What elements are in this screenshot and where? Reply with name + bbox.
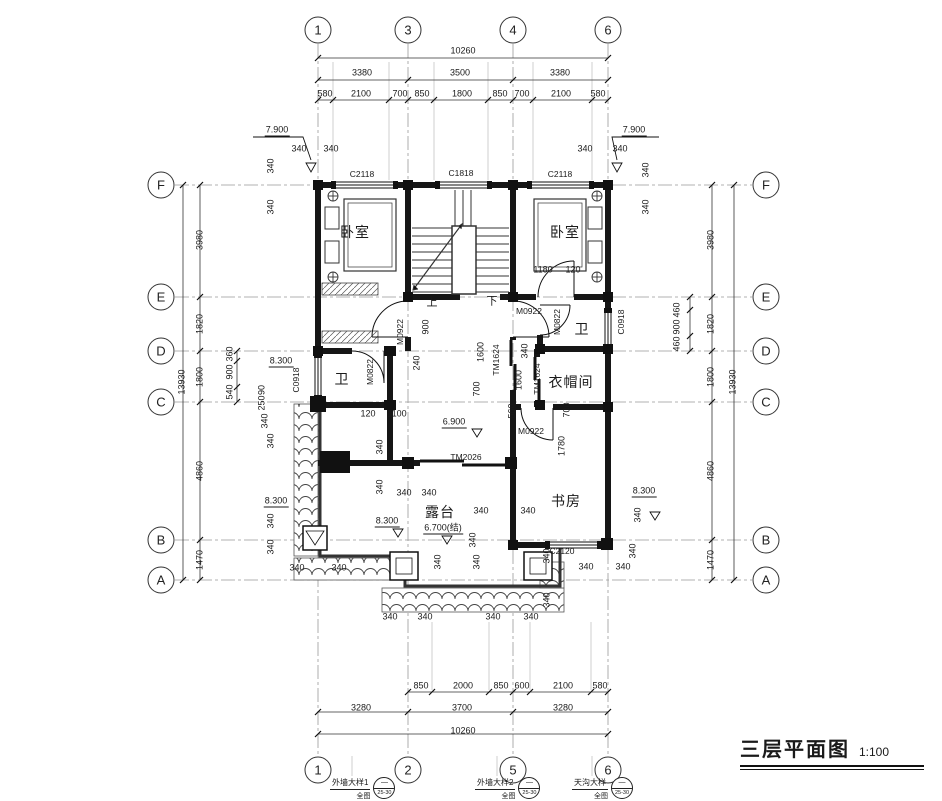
dim-label: 3700: [452, 704, 472, 713]
dim-label: 340: [469, 532, 478, 547]
dim-label: 1780: [558, 436, 567, 456]
dim-label: 340: [289, 564, 304, 573]
dim-label: 3380: [550, 69, 570, 78]
dim-label: 900: [422, 319, 431, 334]
drawing-scale: 1:100: [859, 745, 889, 759]
detail-callout-sub: 全图: [594, 791, 608, 801]
grid-bubble-B: B: [148, 527, 175, 554]
dim-label: 340: [520, 507, 535, 516]
elevation-label: 8.300: [269, 357, 294, 368]
dim-label: 340: [382, 613, 397, 622]
drawing-title-text: 三层平面图: [740, 733, 850, 762]
grid-bubble-D: D: [753, 338, 780, 365]
elevation-label: 8.300: [632, 487, 657, 498]
detail-callout-sub: 全图: [356, 791, 370, 801]
elevation-label: 6.700(结): [423, 524, 463, 535]
room-label: 卫: [335, 372, 350, 386]
dim-label: 850: [492, 90, 507, 99]
dim-label: 13930: [178, 369, 187, 394]
dim-label: 120: [565, 266, 580, 275]
dim-label: 340: [473, 554, 482, 569]
dim-label: 3280: [553, 704, 573, 713]
grid-bubble-1: 1: [305, 757, 332, 784]
dim-label: 340: [267, 158, 276, 173]
annotation-layer: 1026033803500338058021007008501800850700…: [0, 0, 942, 801]
grid-bubble-D: D: [148, 338, 175, 365]
dim-label: 340: [543, 548, 552, 563]
title-underline: [740, 769, 924, 770]
room-label: 卧室: [550, 225, 580, 239]
elevation-label: 7.900: [622, 126, 647, 137]
dim-label: 250: [258, 395, 267, 410]
dim-label: 700: [473, 381, 482, 396]
dim-label: 1800: [196, 367, 205, 387]
detail-reference-circle: —25-30: [373, 777, 395, 799]
grid-bubble-3: 3: [395, 17, 422, 44]
detail-callout: 外墙大样2全图—25-30: [475, 777, 540, 801]
dim-label: 850: [493, 682, 508, 691]
dim-label: 580: [590, 90, 605, 99]
dim-label: 240: [413, 355, 422, 370]
grid-bubble-E: E: [753, 284, 780, 311]
opening-tag: M0922: [518, 427, 544, 436]
elevation-label: 8.300: [375, 517, 400, 528]
dim-label: 700: [514, 90, 529, 99]
dim-label: 900: [673, 319, 682, 334]
detail-callout: 外墙大样1全图—25-30: [330, 777, 395, 801]
dim-label: 700: [392, 90, 407, 99]
dim-label: 340: [331, 564, 346, 573]
dim-label: 1800: [707, 367, 716, 387]
dim-label: 1100: [387, 410, 406, 419]
dim-label: 2100: [351, 90, 371, 99]
grid-bubble-6: 6: [595, 17, 622, 44]
elevation-label: 8.300: [264, 497, 289, 508]
dim-label: 900: [226, 364, 235, 379]
dim-label: 540: [226, 384, 235, 399]
grid-bubble-1: 1: [305, 17, 332, 44]
dim-label: 1600: [515, 370, 524, 390]
dim-label: 340: [376, 479, 385, 494]
detail-callout-label: 外墙大样2: [475, 777, 515, 790]
dim-label: 1820: [707, 314, 716, 334]
dim-label: 340: [267, 513, 276, 528]
dim-label: 1470: [707, 550, 716, 570]
grid-bubble-4: 4: [500, 17, 527, 44]
dim-label: 340: [323, 145, 338, 154]
detail-reference-circle: —25-30: [518, 777, 540, 799]
opening-tag: C0918: [617, 309, 626, 334]
dim-label: 340: [434, 554, 443, 569]
opening-tag: M0922: [516, 307, 542, 316]
dim-label: 1800: [452, 90, 472, 99]
dim-label: 340: [417, 613, 432, 622]
dim-label: 340: [267, 539, 276, 554]
grid-bubble-2: 2: [395, 757, 422, 784]
dim-label: 340: [521, 343, 530, 358]
dim-label: 10260: [450, 47, 475, 56]
dim-label: 3980: [196, 230, 205, 250]
grid-bubble-E: E: [148, 284, 175, 311]
opening-tag: M0822: [553, 309, 562, 335]
room-label: 卧室: [340, 225, 370, 239]
dim-label: 850: [414, 90, 429, 99]
dim-label: 700: [563, 402, 572, 417]
opening-tag: C0918: [292, 367, 301, 392]
dim-label: 3280: [351, 704, 371, 713]
dim-label: 340: [261, 413, 270, 428]
dim-label: 4860: [707, 461, 716, 481]
stair-direction-label: 上: [427, 298, 438, 309]
opening-tag: TM1624: [533, 363, 542, 394]
room-label: 书房: [551, 494, 581, 508]
dim-label: 340: [267, 199, 276, 214]
dim-label: 10260: [450, 727, 475, 736]
detail-callout: 天沟大样全图—25-30: [572, 777, 633, 801]
dim-label: 340: [578, 563, 593, 572]
dim-label: 340: [291, 145, 306, 154]
grid-bubble-B: B: [753, 527, 780, 554]
dim-label: 340: [577, 145, 592, 154]
grid-bubble-A: A: [753, 567, 780, 594]
dim-label: 2100: [551, 90, 571, 99]
dim-label: 3380: [352, 69, 372, 78]
dim-label: 340: [615, 563, 630, 572]
opening-tag: C1818: [448, 169, 473, 178]
elevation-label: 7.900: [265, 126, 290, 137]
dim-label: 340: [642, 162, 651, 177]
detail-callout-sub: 全图: [501, 791, 515, 801]
dim-label: 340: [523, 613, 538, 622]
dim-label: 3980: [707, 230, 716, 250]
dim-label: 560: [508, 403, 517, 418]
dim-label: 340: [629, 543, 638, 558]
dim-label: 4860: [196, 461, 205, 481]
dim-label: 1820: [196, 314, 205, 334]
dim-label: 90: [258, 385, 267, 395]
dim-label: 340: [612, 145, 627, 154]
dim-label: 13930: [729, 369, 738, 394]
dim-label: 340: [376, 439, 385, 454]
dim-label: 360: [226, 346, 235, 361]
opening-tag: C2118: [548, 170, 572, 179]
room-label: 露台: [425, 505, 455, 519]
room-label: 卫: [575, 322, 590, 336]
dim-label: 850: [413, 682, 428, 691]
opening-tag: C2120: [549, 547, 574, 556]
dim-label: 340: [485, 613, 500, 622]
dim-label: 1180: [533, 266, 552, 275]
opening-tag: M0922: [396, 319, 405, 345]
dim-label: 1600: [477, 342, 486, 362]
dim-label: 340: [543, 592, 552, 607]
grid-bubble-A: A: [148, 567, 175, 594]
opening-tag: M0822: [366, 359, 375, 385]
detail-callout-label: 天沟大样: [572, 777, 608, 790]
dim-label: 340: [634, 507, 643, 522]
floor-plan-sheet: 1026033803500338058021007008501800850700…: [0, 0, 942, 801]
dim-label: 120: [360, 410, 375, 419]
dim-label: 340: [396, 489, 411, 498]
dim-label: 340: [642, 199, 651, 214]
opening-tag: TM2026: [450, 453, 481, 462]
grid-bubble-C: C: [753, 389, 780, 416]
grid-bubble-F: F: [753, 172, 780, 199]
dim-label: 2100: [553, 682, 573, 691]
dim-label: 600: [514, 682, 529, 691]
dim-label: 1470: [196, 550, 205, 570]
dim-label: 460: [673, 336, 682, 351]
dim-label: 580: [592, 682, 607, 691]
dim-label: 3500: [450, 69, 470, 78]
dim-label: 340: [473, 507, 488, 516]
dim-label: 340: [267, 433, 276, 448]
room-label: 衣帽间: [549, 375, 594, 389]
drawing-title: 三层平面图 1:100: [740, 733, 924, 767]
opening-tag: TM1624: [492, 344, 501, 375]
grid-bubble-C: C: [148, 389, 175, 416]
dim-label: 460: [673, 302, 682, 317]
detail-callout-label: 外墙大样1: [330, 777, 370, 790]
dim-label: 340: [421, 489, 436, 498]
opening-tag: C2118: [350, 170, 374, 179]
grid-bubble-F: F: [148, 172, 175, 199]
detail-reference-circle: —25-30: [611, 777, 633, 799]
dim-label: 580: [317, 90, 332, 99]
stair-direction-label: 下: [487, 297, 498, 308]
dim-label: 2000: [453, 682, 473, 691]
elevation-label: 6.900: [442, 418, 467, 429]
